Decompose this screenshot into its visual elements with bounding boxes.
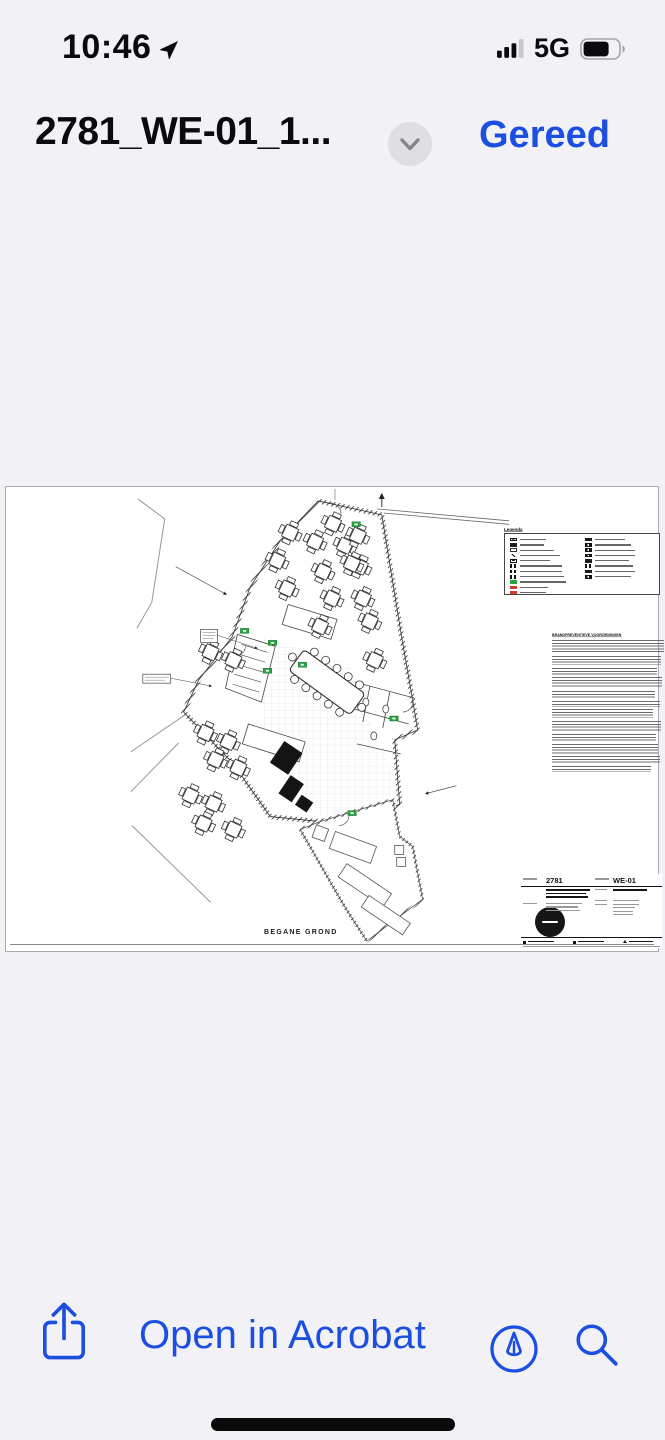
title-block-field [613, 904, 639, 905]
project-number: 2781 [546, 876, 563, 885]
notes-block: BRANDPREVENTIEVE VOORZIENINGEN [552, 633, 664, 775]
legend-symbol [585, 554, 592, 558]
title-block-field [613, 911, 633, 912]
legend-symbol [585, 559, 592, 563]
status-bar-left: 10:46 [62, 28, 182, 67]
title-block-field [595, 900, 607, 901]
legend-column-right [585, 537, 635, 579]
notes-title: BRANDPREVENTIEVE VOORZIENINGEN [552, 633, 660, 636]
markup-icon [489, 1324, 539, 1374]
dining-table [175, 780, 205, 810]
title-block-field [613, 900, 639, 901]
title-block-field [546, 910, 580, 911]
done-button[interactable]: Gereed [479, 114, 610, 157]
legend-symbol [510, 554, 517, 558]
legend-symbol [585, 543, 592, 547]
title-block-field [578, 941, 604, 943]
legend-row [510, 590, 566, 595]
title-block-field [528, 941, 554, 943]
title-block-field [613, 907, 635, 908]
drawing-number: WE-01 [613, 876, 636, 885]
legend-text [520, 587, 548, 588]
fence-line [377, 509, 509, 524]
signal-icon [497, 39, 524, 58]
title-block-field [523, 903, 537, 904]
exit-sign-pictogram [243, 630, 246, 632]
legend-text [520, 544, 544, 545]
sheet-frame-line [10, 944, 654, 945]
legend-symbol [510, 575, 517, 579]
legend-symbol [510, 548, 517, 552]
notes-paragraph [552, 756, 660, 764]
title-block-field [546, 906, 578, 907]
markup-button[interactable] [489, 1324, 539, 1377]
notes-paragraph [552, 656, 661, 665]
legend-text [520, 581, 566, 582]
legend: Legenda [504, 527, 660, 595]
search-icon [572, 1320, 622, 1370]
title-block-field [546, 893, 586, 895]
site-boundary-line [137, 499, 165, 628]
legend-symbol [510, 543, 517, 547]
legend-text [595, 565, 633, 566]
legend-box [504, 533, 660, 595]
exit-sign-pictogram [392, 718, 395, 720]
legend-text [520, 592, 546, 593]
document-title: 2781_WE-01_1... [35, 110, 331, 154]
legend-text [595, 560, 629, 561]
architect-logo [535, 907, 565, 937]
search-button[interactable] [572, 1320, 622, 1373]
title-block-field [521, 886, 662, 887]
legend-column-left [510, 537, 566, 595]
dining-table [218, 814, 248, 844]
battery-icon [580, 38, 627, 60]
legend-text [595, 576, 631, 577]
legend-symbol [585, 570, 592, 574]
legend-text [595, 550, 635, 551]
title-block-field [546, 896, 588, 898]
network-label: 5G [534, 33, 570, 64]
notes-paragraph [552, 668, 657, 675]
title-block: 2781 WE-01 [521, 874, 662, 948]
legend-row [585, 574, 635, 579]
title-block-bullet [623, 940, 627, 943]
exit-sign-pictogram [266, 670, 269, 672]
notes-paragraph [552, 677, 662, 688]
floor-label: BEGANE GROND [264, 929, 338, 936]
share-icon [38, 1300, 90, 1364]
notes-body [552, 640, 664, 772]
exit-sign-pictogram [301, 664, 304, 666]
notes-paragraph [552, 691, 655, 699]
chevron-down-icon [400, 138, 420, 151]
exit-sign-pictogram [355, 523, 358, 525]
title-block-field [613, 889, 647, 891]
title-block-field [595, 889, 607, 890]
legend-text [520, 560, 550, 561]
pdf-page[interactable]: Legenda BRANDPREVENTIEVE VOORZIENINGEN 2… [5, 486, 659, 952]
legend-text [520, 550, 554, 551]
legend-symbol [585, 538, 592, 542]
location-arrow-icon [160, 37, 182, 59]
notes-paragraph [552, 721, 661, 732]
notes-paragraph [552, 766, 651, 772]
legend-symbol [510, 586, 517, 590]
dining-table [198, 788, 228, 818]
legend-symbol [585, 564, 592, 568]
legend-text [520, 571, 562, 572]
legend-symbol [585, 548, 592, 552]
notes-paragraph [552, 734, 656, 741]
legend-symbol [510, 570, 517, 574]
legend-text [595, 539, 625, 540]
open-in-acrobat-button[interactable]: Open in Acrobat [139, 1313, 426, 1358]
dining-table [188, 808, 218, 838]
title-block-field [629, 941, 653, 943]
legend-text [520, 555, 560, 556]
legend-text [520, 539, 546, 540]
home-indicator[interactable] [211, 1418, 455, 1431]
legend-symbol [510, 564, 517, 568]
title-block-field [595, 878, 609, 880]
notes-paragraph [552, 744, 658, 754]
clock: 10:46 [62, 28, 151, 67]
legend-symbol [510, 580, 517, 584]
legend-text [520, 565, 562, 566]
legend-text [595, 544, 631, 545]
title-block-field [595, 904, 607, 905]
notes-paragraph [552, 640, 664, 654]
legend-text [595, 555, 635, 556]
title-block-field [546, 903, 582, 904]
legend-symbol [510, 538, 517, 542]
notes-paragraph [552, 701, 660, 707]
title-block-field [523, 878, 537, 880]
notes-paragraph [552, 709, 653, 718]
legend-symbol [510, 591, 517, 595]
status-bar-right: 5G [497, 33, 627, 64]
title-block-field [613, 914, 633, 915]
legend-symbol [510, 559, 517, 563]
share-button[interactable] [38, 1300, 90, 1367]
legend-title: Legenda [504, 527, 582, 530]
legend-text [520, 576, 564, 577]
legend-symbol [585, 575, 592, 579]
title-disclosure-button[interactable] [388, 122, 432, 166]
exit-sign-pictogram [271, 642, 274, 644]
title-block-field [546, 889, 590, 891]
title-block-field [521, 937, 662, 938]
legend-text [595, 571, 635, 572]
exit-sign-pictogram [351, 812, 354, 814]
title-block-field [523, 946, 660, 947]
